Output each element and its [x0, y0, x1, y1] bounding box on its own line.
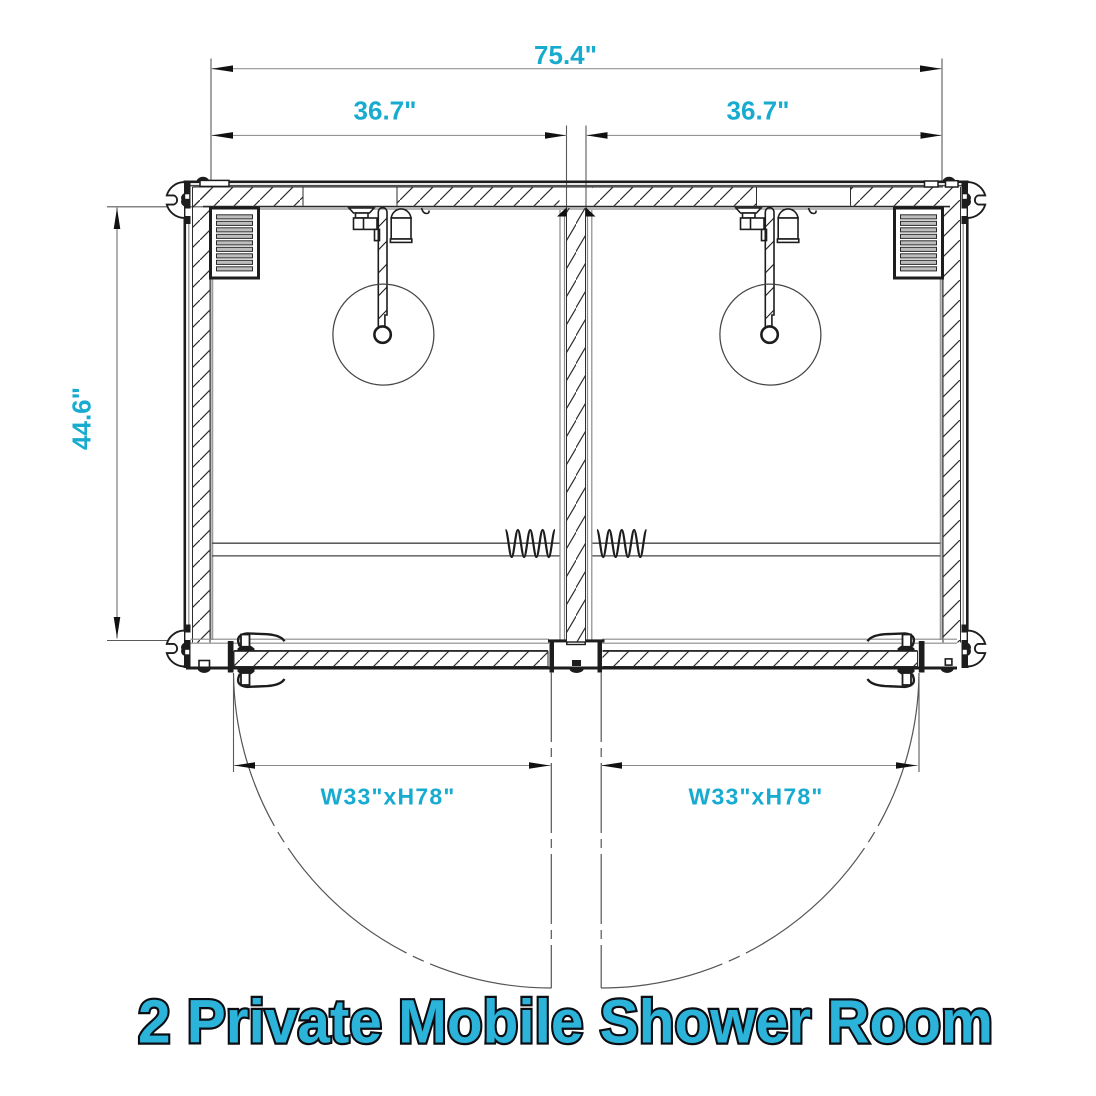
svg-text:W33"xH78": W33"xH78"	[689, 784, 824, 810]
svg-text:36.7": 36.7"	[354, 96, 417, 126]
svg-text:75.4": 75.4"	[534, 40, 597, 70]
svg-text:2 Private Mobile Shower Room: 2 Private Mobile Shower Room	[138, 988, 993, 1056]
svg-text:W33"xH78": W33"xH78"	[321, 784, 456, 810]
svg-text:44.6": 44.6"	[67, 387, 97, 450]
svg-text:36.7": 36.7"	[727, 96, 790, 126]
